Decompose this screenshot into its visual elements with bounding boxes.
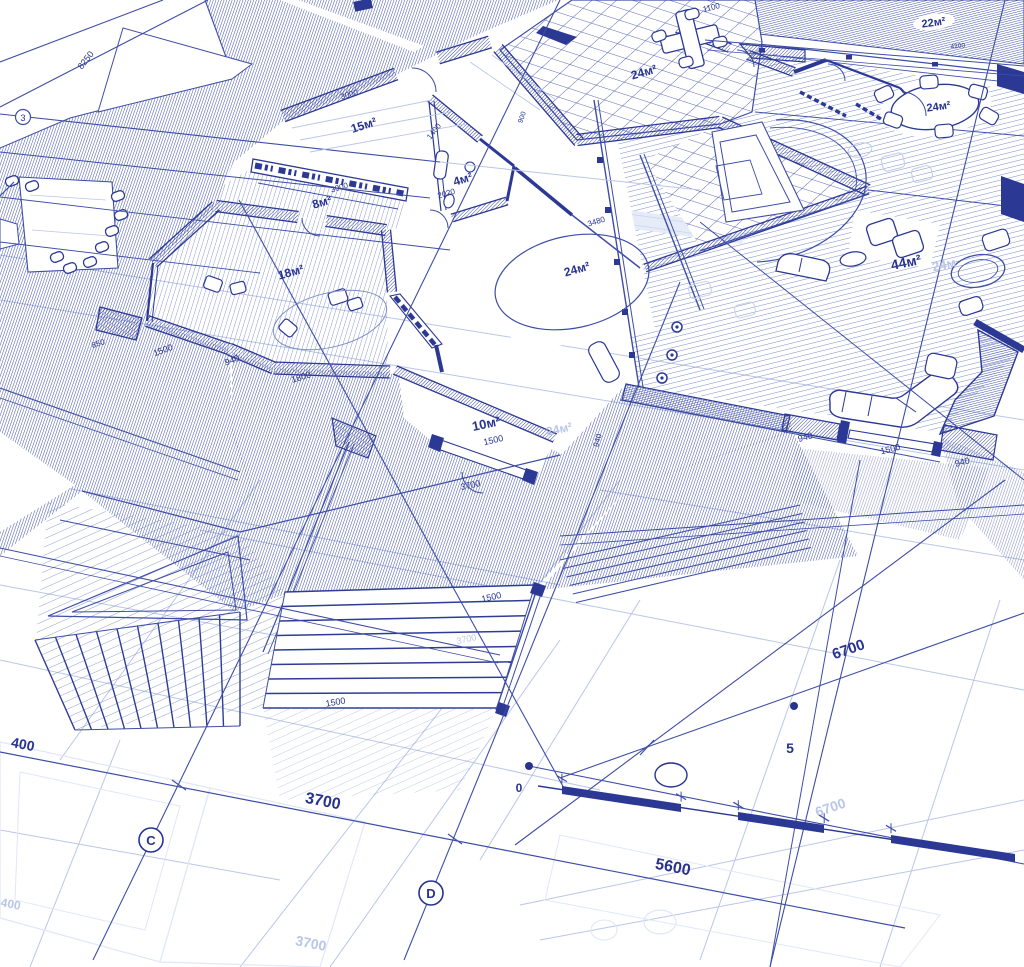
svg-text:5: 5 [786, 740, 794, 756]
svg-text:3: 3 [20, 113, 25, 123]
svg-text:0: 0 [516, 781, 523, 795]
svg-text:D: D [426, 886, 435, 901]
svg-text:C: C [146, 833, 156, 848]
